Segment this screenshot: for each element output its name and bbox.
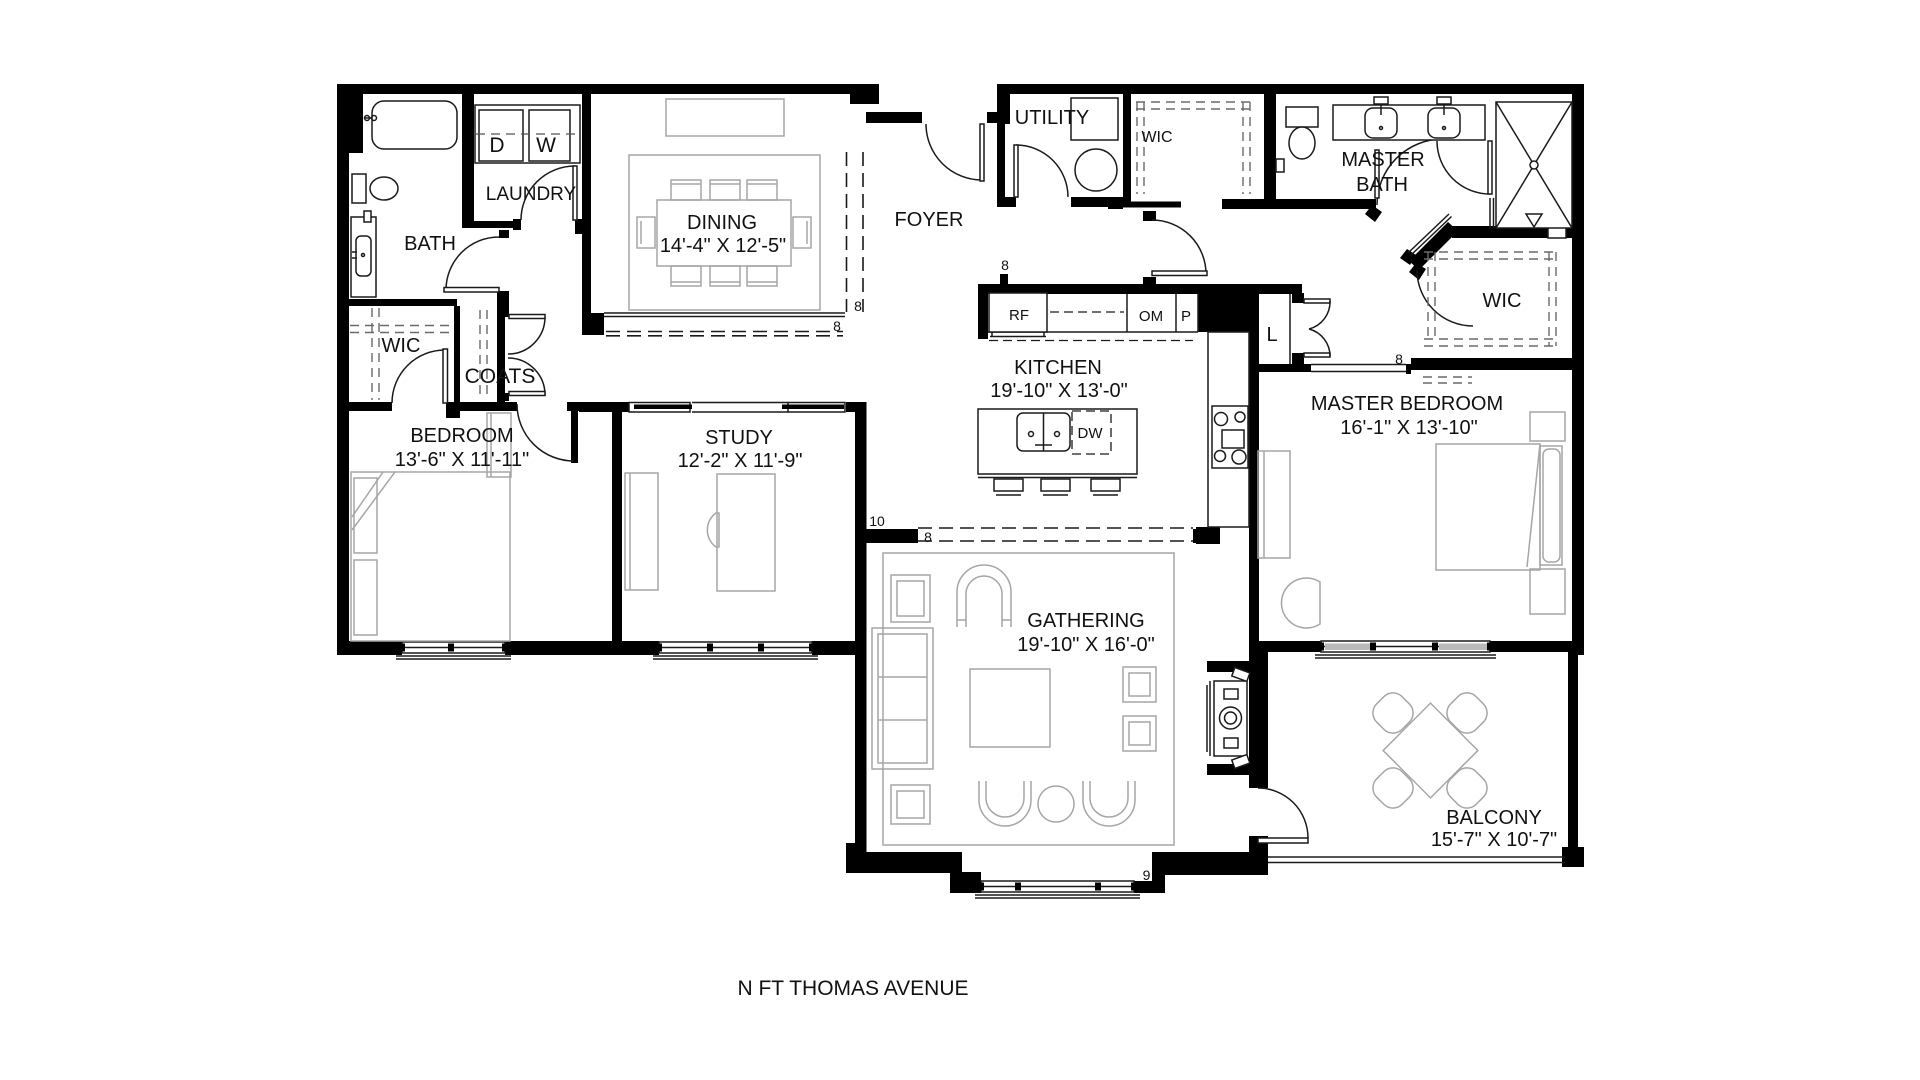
svg-text:BALCONY: BALCONY (1446, 807, 1542, 829)
svg-text:12'-2" X 11'-9": 12'-2" X 11'-9" (678, 450, 803, 472)
svg-text:STUDY: STUDY (705, 427, 773, 449)
svg-text:UTILITY: UTILITY (1015, 107, 1089, 129)
svg-text:WIC: WIC (1141, 129, 1172, 146)
svg-text:FOYER: FOYER (895, 209, 964, 231)
svg-text:19'-10" X 16'-0": 19'-10" X 16'-0" (1017, 634, 1154, 656)
svg-text:8: 8 (833, 318, 841, 334)
svg-text:9: 9 (1143, 867, 1151, 883)
svg-text:COATS: COATS (465, 365, 536, 388)
svg-text:16'-1" X 13'-10": 16'-1" X 13'-10" (1340, 417, 1477, 439)
svg-text:8: 8 (924, 529, 932, 545)
svg-text:13'-6" X 11'-11": 13'-6" X 11'-11" (395, 449, 530, 471)
svg-text:D: D (489, 134, 504, 157)
svg-text:BATH: BATH (404, 233, 456, 255)
svg-text:KITCHEN: KITCHEN (1014, 357, 1102, 379)
svg-text:DINING: DINING (687, 212, 757, 234)
svg-text:N FT THOMAS AVENUE: N FT THOMAS AVENUE (737, 977, 968, 1000)
svg-text:8: 8 (854, 298, 862, 314)
svg-text:14'-4" X 12'-5": 14'-4" X 12'-5" (660, 235, 786, 257)
svg-text:8: 8 (1001, 257, 1009, 273)
svg-text:8: 8 (1395, 351, 1403, 367)
svg-text:15'-7" X 10'-7": 15'-7" X 10'-7" (1431, 829, 1557, 851)
svg-text:DW: DW (1078, 425, 1104, 442)
svg-text:BEDROOM: BEDROOM (410, 425, 513, 447)
svg-text:BATH: BATH (1356, 174, 1408, 196)
svg-text:RF: RF (1009, 307, 1029, 324)
svg-text:P: P (1181, 308, 1191, 325)
svg-text:W: W (536, 134, 556, 157)
svg-text:GATHERING: GATHERING (1027, 610, 1144, 632)
svg-text:LAUNDRY: LAUNDRY (486, 184, 577, 205)
svg-text:10: 10 (869, 513, 885, 529)
svg-text:19'-10" X 13'-0": 19'-10" X 13'-0" (990, 380, 1127, 402)
svg-text:MASTER BEDROOM: MASTER BEDROOM (1311, 393, 1503, 415)
svg-text:WIC: WIC (382, 335, 421, 357)
svg-text:WIC: WIC (1483, 290, 1522, 312)
svg-text:OM: OM (1139, 308, 1163, 325)
svg-text:MASTER: MASTER (1341, 149, 1424, 171)
svg-text:L: L (1266, 324, 1277, 346)
